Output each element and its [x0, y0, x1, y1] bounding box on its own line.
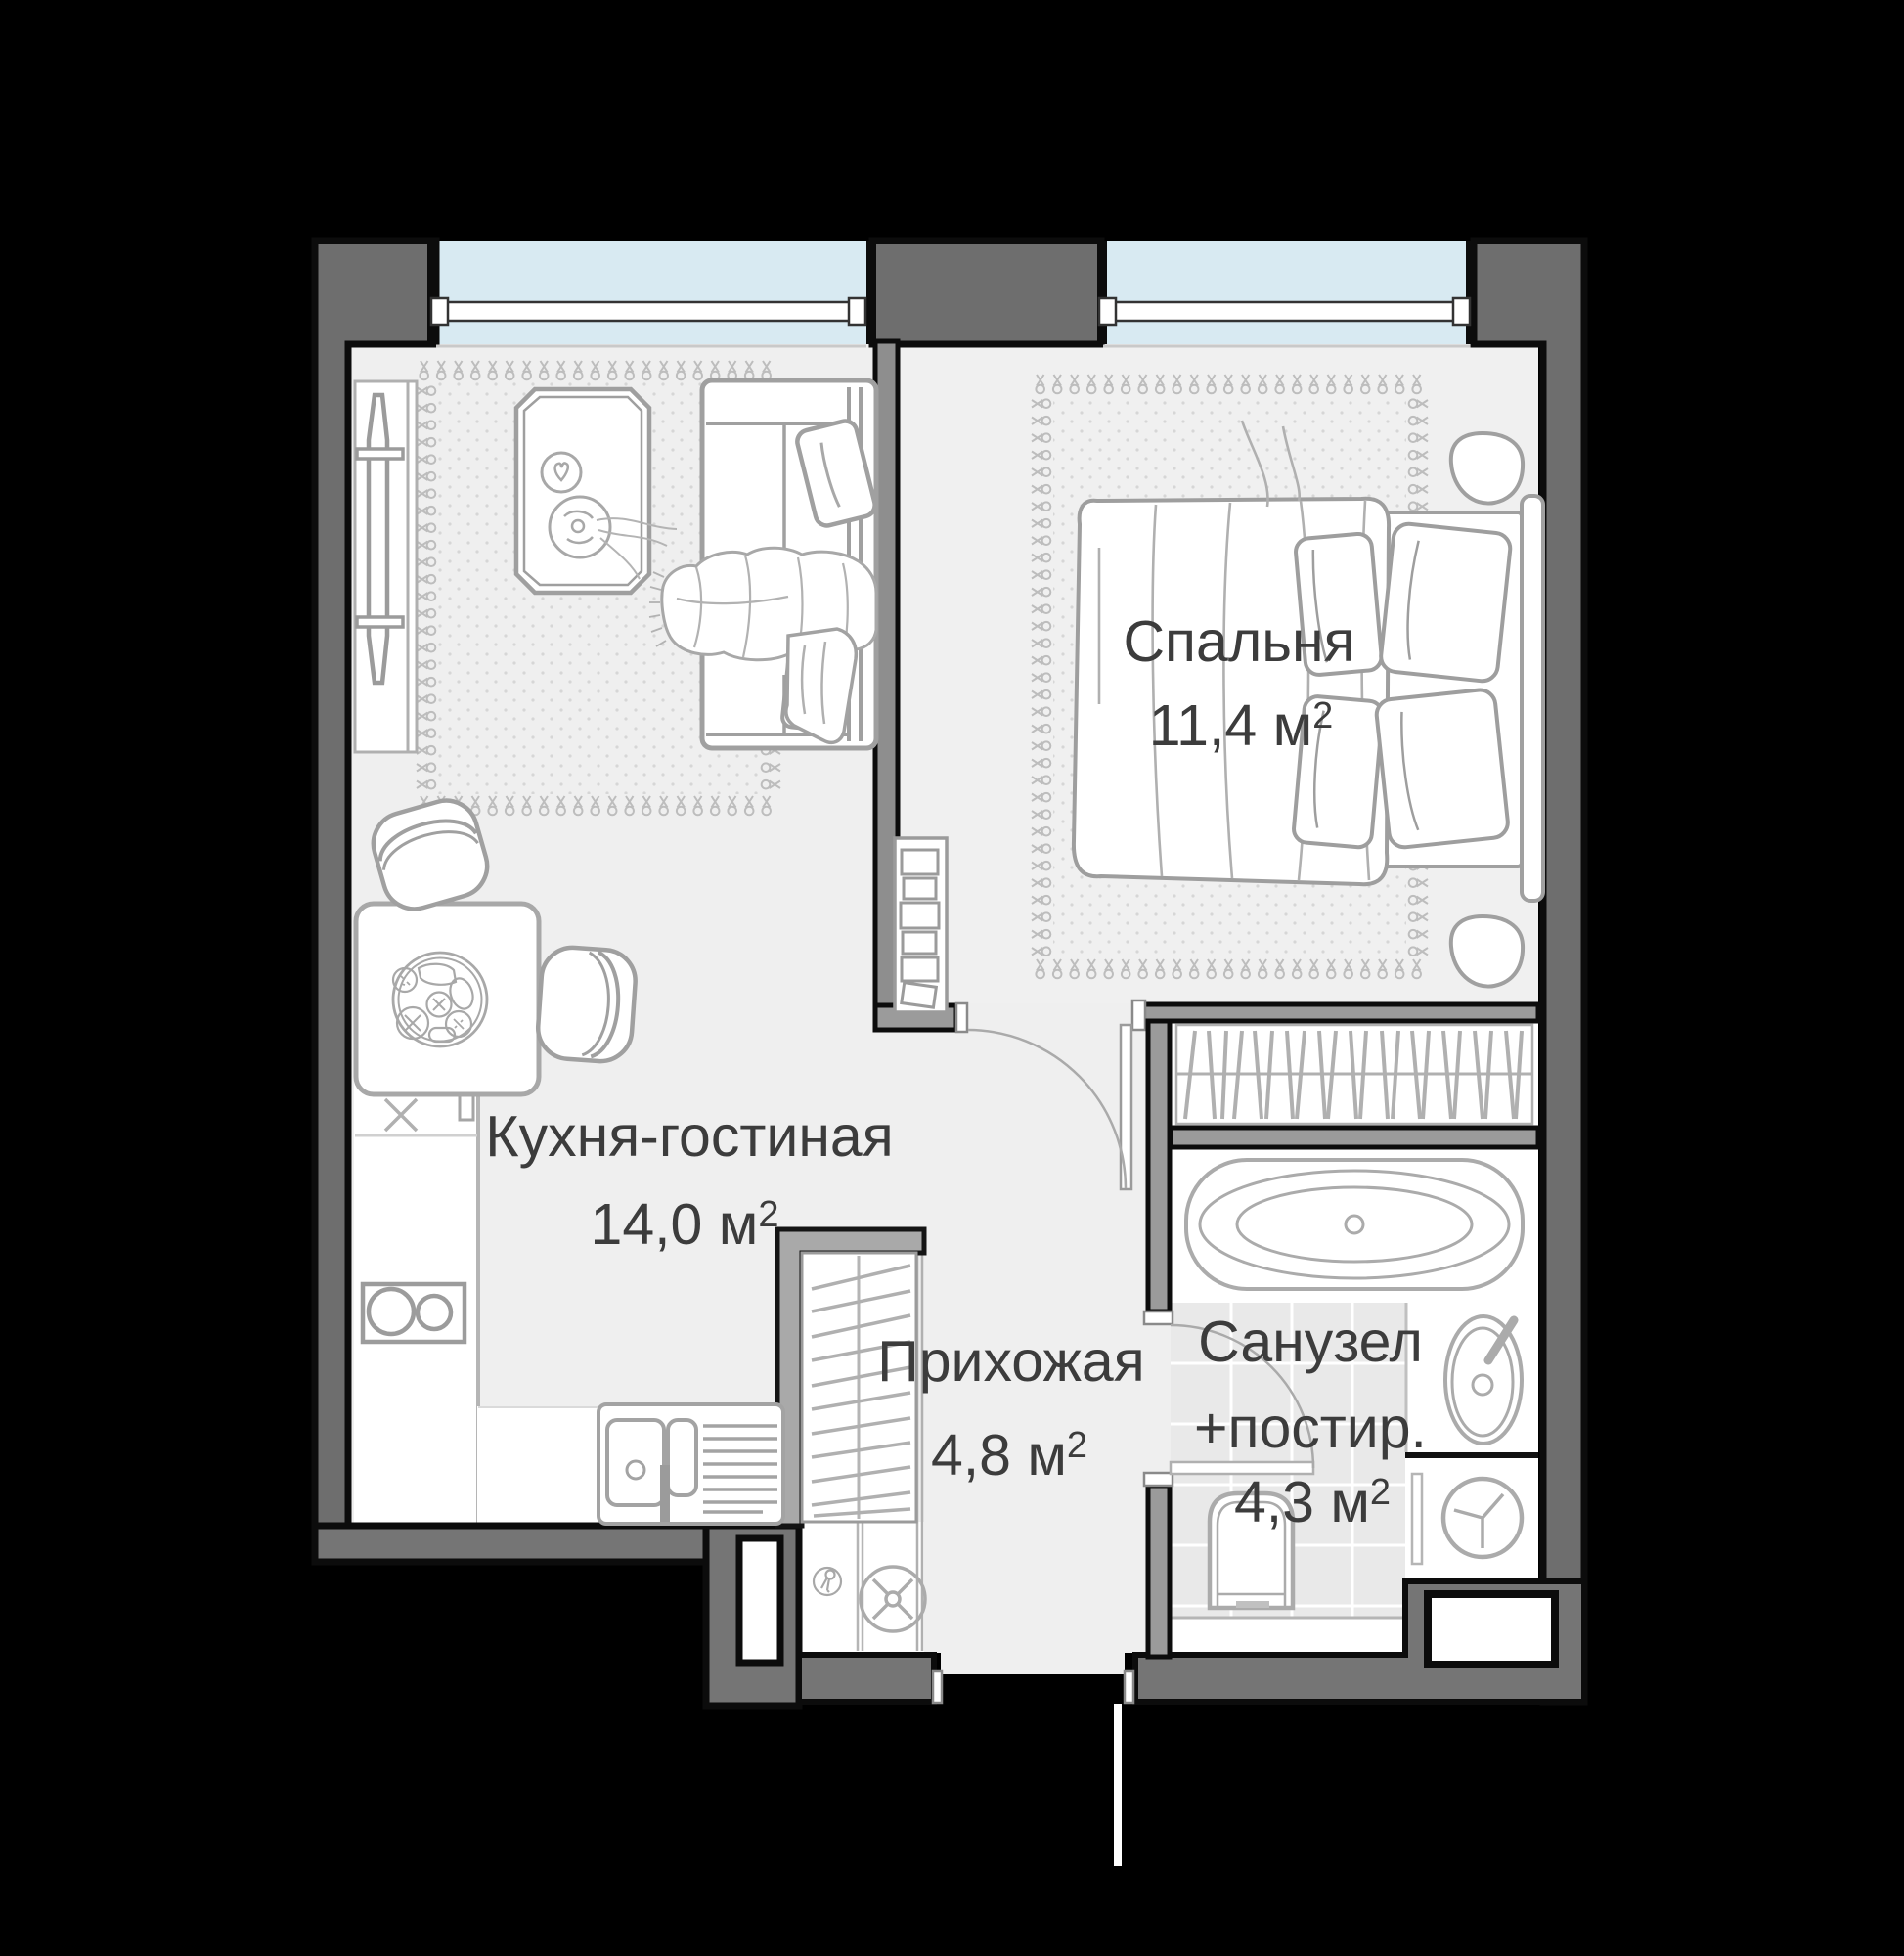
svg-text:+постир.: +постир. [1194, 1396, 1427, 1460]
svg-text:Прихожая: Прихожая [877, 1329, 1144, 1394]
svg-text:11,4 м2: 11,4 м2 [1149, 693, 1334, 758]
svg-text:4,8 м2: 4,8 м2 [931, 1423, 1087, 1488]
svg-text:Спальня: Спальня [1123, 609, 1354, 674]
svg-text:14,0 м2: 14,0 м2 [591, 1192, 779, 1257]
svg-text:4,3 м2: 4,3 м2 [1234, 1470, 1391, 1534]
svg-text:Санузел: Санузел [1198, 1310, 1423, 1374]
svg-text:Кухня-гостиная: Кухня-гостиная [485, 1104, 893, 1169]
